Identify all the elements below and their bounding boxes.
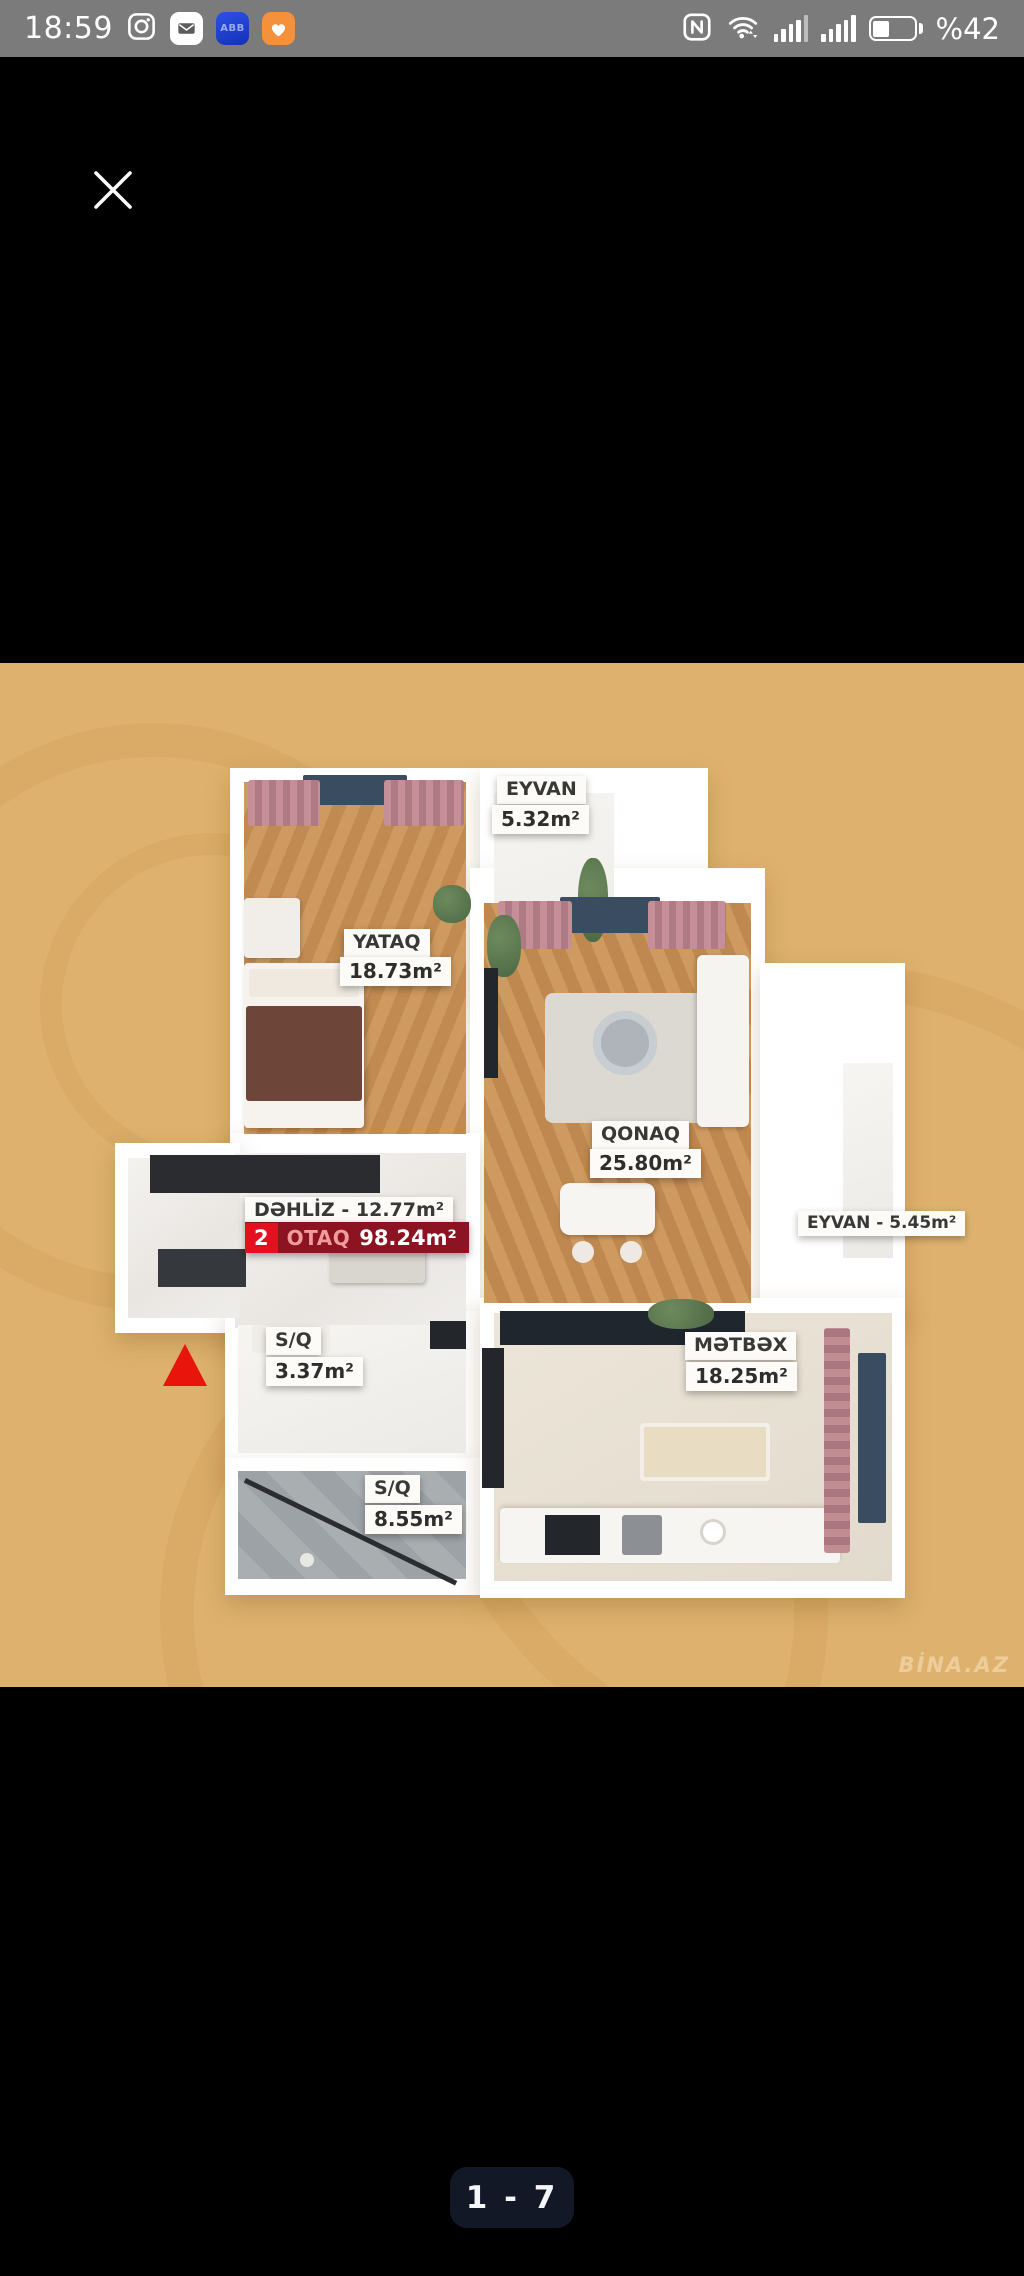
- hall-cabinet: [158, 1249, 246, 1287]
- label-qonaq-name: QONAQ: [592, 1121, 689, 1149]
- label-dehliz: DƏHLİZ - 12.77m²: [245, 1197, 453, 1225]
- label-eyvan-right: EYVAN - 5.45m²: [798, 1211, 965, 1236]
- label-room-word: OTAQ: [287, 1226, 351, 1250]
- nfc-icon: [682, 12, 712, 46]
- abb-app-icon: ABB: [216, 12, 249, 45]
- instagram-icon: [126, 11, 157, 46]
- kitchen-plant: [648, 1299, 714, 1329]
- status-bar-right: %42: [682, 11, 1000, 46]
- mail-app-icon: [170, 12, 203, 45]
- label-qonaq-area: 25.80m²: [590, 1149, 701, 1178]
- label-sq-small-area: 3.37m²: [266, 1357, 363, 1386]
- page-indicator-badge: 1 - 7: [450, 2167, 574, 2228]
- hall-wardrobe: [150, 1155, 380, 1193]
- dining-table: [560, 1183, 655, 1235]
- living-curtain-right: [648, 901, 726, 949]
- signal-sim1-icon: [774, 15, 809, 42]
- floorplan-photo[interactable]: EYVAN 5.32m² YATAQ 18.73m² QONAQ 25.80m²…: [0, 663, 1024, 1687]
- living-balcony-door: [560, 897, 660, 933]
- label-sq-large-name: S/Q: [365, 1475, 420, 1503]
- label-total-sqm: 98.24m²: [359, 1226, 457, 1250]
- bedroom-curtain-left: [248, 780, 320, 826]
- stove: [545, 1515, 600, 1555]
- bedroom-curtain-right: [384, 780, 464, 826]
- page-indicator-text: 1 - 7: [466, 2180, 559, 2216]
- wifi-icon: [725, 11, 761, 46]
- label-yataq-name: YATAQ: [344, 929, 430, 957]
- battery-percent-text: %42: [936, 12, 1000, 46]
- bath-small-washer: [430, 1321, 466, 1349]
- north-arrow-icon: [163, 1344, 207, 1386]
- health-app-icon: [262, 12, 295, 45]
- label-eyvan-top-area: 5.32m²: [492, 805, 589, 834]
- shower-drain: [300, 1553, 314, 1567]
- status-bar: 18:59 ABB: [0, 0, 1024, 57]
- sofa: [697, 955, 749, 1127]
- label-sq-small-name: S/Q: [266, 1327, 321, 1355]
- signal-sim2-icon: [821, 15, 856, 42]
- label-total-area: 2 OTAQ 98.24m²: [245, 1222, 469, 1253]
- kitchen-radiator: [824, 1328, 850, 1553]
- label-room-count: 2: [245, 1223, 278, 1253]
- vanity-table: [244, 898, 300, 958]
- dining-chair: [620, 1241, 642, 1263]
- clock: 18:59: [24, 11, 113, 46]
- bina-az-watermark: BİNA.AZ: [899, 1653, 1011, 1677]
- kitchen-island: [640, 1423, 770, 1481]
- close-button[interactable]: [82, 160, 144, 222]
- abb-app-label: ABB: [220, 23, 244, 34]
- status-bar-left: 18:59 ABB: [24, 11, 295, 46]
- close-icon: [84, 161, 142, 222]
- dining-chair: [572, 1241, 594, 1263]
- kitchen-sink: [700, 1519, 726, 1545]
- tv-panel: [484, 968, 498, 1078]
- label-metbex-area: 18.25m²: [686, 1362, 797, 1391]
- label-sq-large-area: 8.55m²: [365, 1505, 462, 1534]
- label-yataq-area: 18.73m²: [340, 957, 451, 986]
- label-eyvan-top-name: EYVAN: [497, 776, 586, 804]
- bedroom-plant: [433, 885, 471, 923]
- round-table: [593, 1011, 657, 1075]
- battery-icon: [869, 16, 923, 41]
- bed-blanket: [246, 1006, 362, 1101]
- oven: [622, 1515, 662, 1555]
- kitchen-window: [858, 1353, 886, 1523]
- label-metbex-name: MƏTBƏX: [685, 1332, 796, 1360]
- battery-fill: [873, 21, 889, 37]
- kitchen-column: [482, 1348, 504, 1488]
